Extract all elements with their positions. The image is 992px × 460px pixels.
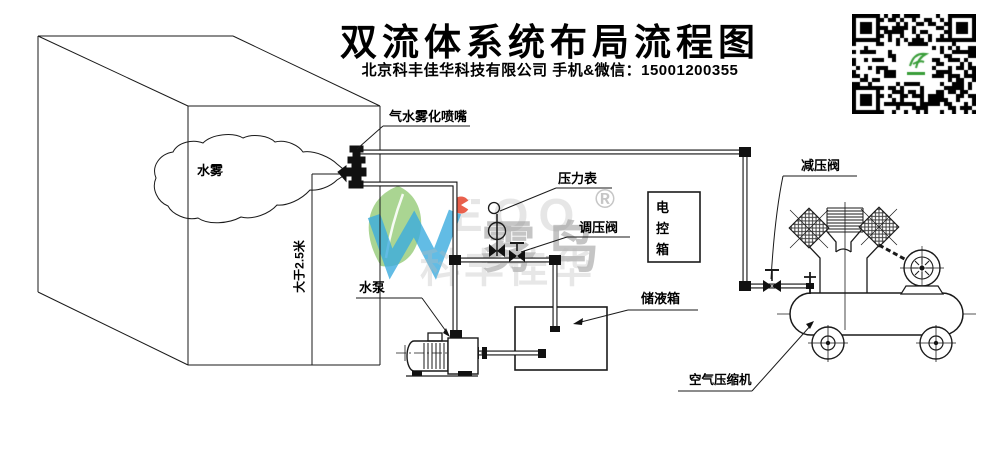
leader-arrowheads bbox=[443, 318, 814, 337]
motor-fins bbox=[424, 343, 444, 369]
air-compressor bbox=[777, 202, 976, 362]
leader-regulating-valve bbox=[521, 237, 630, 252]
cylinder-left bbox=[789, 208, 829, 248]
drive-belt bbox=[879, 245, 910, 262]
label-pressure-gauge: 压力表 bbox=[558, 172, 597, 186]
storage-tank bbox=[515, 307, 607, 370]
label-control-box: 电控箱 bbox=[656, 197, 692, 260]
leader-water-pump bbox=[356, 298, 448, 334]
leader-pressure-gauge bbox=[500, 188, 612, 211]
label-storage-tank: 储液箱 bbox=[641, 292, 680, 306]
label-water-pump: 水泵 bbox=[359, 281, 385, 295]
label-reducing-valve: 减压阀 bbox=[801, 159, 840, 173]
mist-cloud bbox=[154, 135, 348, 223]
tank-inlet-fitting bbox=[804, 272, 816, 294]
label-regulating-valve: 调压阀 bbox=[579, 221, 618, 235]
return-elbow bbox=[549, 255, 561, 265]
return-pipe bbox=[455, 260, 555, 330]
motor-pulley bbox=[900, 246, 944, 294]
leader-nozzle bbox=[357, 126, 470, 149]
water-pipe bbox=[362, 184, 455, 334]
page-title: 双流体系统布局流程图 bbox=[300, 12, 800, 66]
nozzle-assembly bbox=[338, 146, 366, 188]
label-water-mist: 水雾 bbox=[197, 164, 223, 178]
leader-storage-tank bbox=[577, 310, 698, 323]
water-pump bbox=[396, 330, 486, 376]
company-contact-line: 北京科丰佳华科技有限公司 手机&微信：15001200355 bbox=[290, 59, 810, 80]
wechat-qr-code bbox=[852, 14, 976, 114]
pressure-gauge-dial bbox=[489, 203, 500, 214]
water-tee bbox=[449, 255, 461, 265]
pump-head bbox=[448, 338, 478, 374]
label-height-dimension: 大于2.5米 bbox=[291, 229, 308, 305]
gauge-assembly bbox=[489, 203, 506, 258]
return-pipe-cap bbox=[550, 326, 560, 332]
pump-discharge-fitting bbox=[450, 330, 462, 338]
label-atomizing-nozzle: 气水雾化喷嘴 bbox=[389, 110, 467, 124]
height-dimension-lines bbox=[312, 174, 350, 365]
reducing-valve bbox=[763, 270, 781, 292]
air-elbow-top bbox=[739, 147, 751, 157]
air-elbow-bottom bbox=[739, 281, 751, 291]
suction-pipe-cap bbox=[538, 349, 546, 358]
motor-terminal-box bbox=[428, 333, 442, 341]
label-air-compressor: 空气压缩机 bbox=[689, 373, 752, 387]
flow-diagram-page: EOO 雾鸟 ® 科丰佳华 bbox=[0, 0, 992, 460]
room-box bbox=[38, 36, 380, 365]
